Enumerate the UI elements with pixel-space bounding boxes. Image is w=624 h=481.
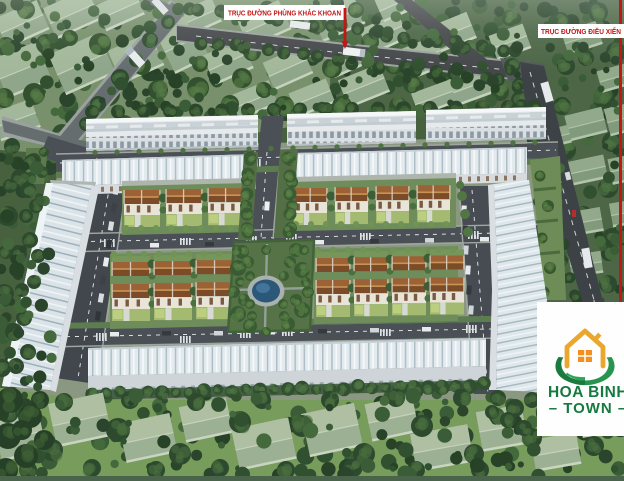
svg-text:– TOWN –: – TOWN –	[549, 400, 624, 417]
svg-text:TRỤC ĐƯỜNG PHÙNG KHẮC KHOAN: TRỤC ĐƯỜNG PHÙNG KHẮC KHOAN	[228, 9, 341, 18]
svg-text:HOA BINH: HOA BINH	[548, 384, 624, 401]
